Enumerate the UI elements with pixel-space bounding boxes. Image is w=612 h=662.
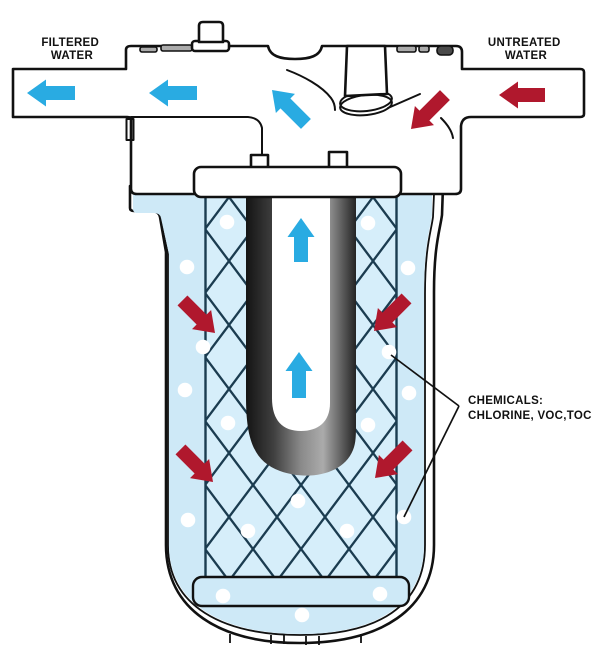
chemical-bubble xyxy=(373,587,388,602)
chemical-bubble xyxy=(178,383,193,398)
mounting-clip-3 xyxy=(397,46,416,52)
chemical-bubble xyxy=(180,260,195,275)
mounting-clip-1 xyxy=(140,47,157,52)
chemical-bubble xyxy=(340,524,355,539)
chemical-bubble xyxy=(221,416,236,431)
chemical-bubble xyxy=(401,261,416,276)
cartridge-top-cap xyxy=(194,167,401,197)
diagram-canvas: FILTERED WATER UNTREATED WATER CHEMICALS… xyxy=(0,0,612,662)
chemical-bubble xyxy=(216,589,231,604)
chemical-bubble xyxy=(241,524,256,539)
chemical-bubble xyxy=(402,386,417,401)
chemical-bubble xyxy=(220,215,235,230)
untreated-water-label: UNTREATED WATER xyxy=(488,37,564,62)
chemical-bubble xyxy=(361,216,376,231)
filtered-water-label: FILTERED WATER xyxy=(41,37,102,62)
chemical-bubble xyxy=(181,513,196,528)
inlet-port-cylinder xyxy=(345,46,387,96)
mounting-clip-5 xyxy=(437,46,453,55)
chemicals-label: CHEMICALS: CHLORINE, VOC,TOC xyxy=(468,395,592,422)
chemical-bubble xyxy=(361,418,376,433)
mounting-clip-2 xyxy=(161,45,192,51)
chemical-bubble xyxy=(196,340,211,355)
vent-button xyxy=(192,22,229,51)
mounting-clip-4 xyxy=(419,46,429,52)
water-filter-diagram: FILTERED WATER UNTREATED WATER CHEMICALS… xyxy=(0,0,612,662)
chemical-bubble xyxy=(291,494,306,509)
chemical-bubble xyxy=(295,608,310,623)
